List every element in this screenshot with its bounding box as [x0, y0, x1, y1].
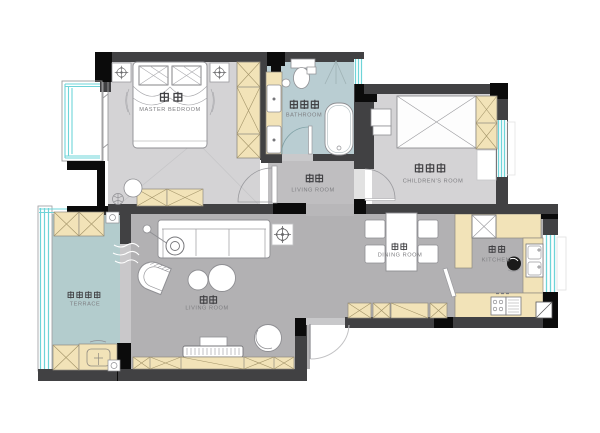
svg-text:MASTER BEDROOM: MASTER BEDROOM: [139, 107, 200, 113]
svg-text:DINING ROOM: DINING ROOM: [378, 253, 423, 259]
svg-text:CHILDREN'S ROOM: CHILDREN'S ROOM: [403, 179, 464, 185]
svg-text:TERRACE: TERRACE: [70, 302, 101, 308]
svg-text:BATHROOM: BATHROOM: [286, 113, 322, 119]
svg-text:KITCHEN: KITCHEN: [482, 258, 510, 264]
svg-text:LIVING ROOM: LIVING ROOM: [291, 188, 334, 194]
svg-text:LIVING ROOM: LIVING ROOM: [185, 306, 228, 312]
